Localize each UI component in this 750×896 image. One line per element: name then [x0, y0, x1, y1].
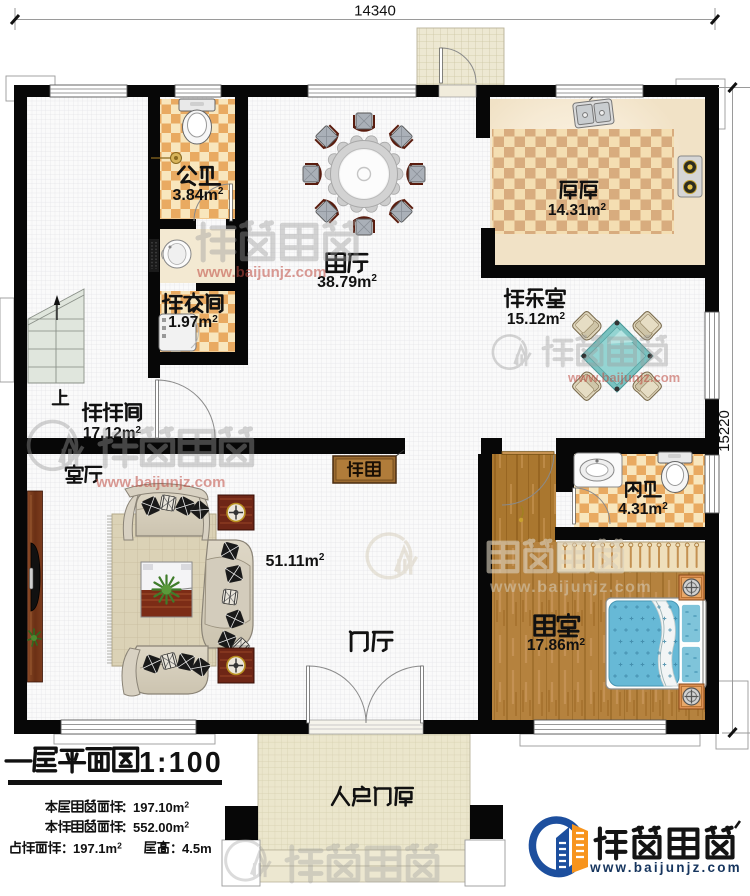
svg-text:197.1m2: 197.1m2	[73, 841, 122, 857]
svg-text:17.86m2: 17.86m2	[527, 637, 586, 654]
svg-text:4.5m: 4.5m	[182, 841, 212, 856]
svg-text:197.10m2: 197.10m2	[133, 800, 189, 816]
svg-text:1:100: 1:100	[139, 747, 223, 779]
svg-text:1.97m2: 1.97m2	[168, 314, 218, 331]
svg-text:www.baijunjz.com: www.baijunjz.com	[567, 370, 680, 385]
svg-text:www.baijunjz.com: www.baijunjz.com	[489, 579, 652, 596]
svg-text:14.31m2: 14.31m2	[548, 202, 607, 219]
svg-text:51.11m2: 51.11m2	[266, 552, 325, 570]
svg-text:www.baijunjz.com: www.baijunjz.com	[589, 860, 742, 875]
svg-text:4.31m2: 4.31m2	[618, 501, 668, 518]
svg-text:15220: 15220	[716, 410, 733, 452]
svg-text:552.00m2: 552.00m2	[133, 820, 189, 836]
svg-text:14340: 14340	[354, 3, 396, 20]
svg-text:www.baijunjz.com: www.baijunjz.com	[196, 264, 326, 281]
svg-text:www.baijunjz.com: www.baijunjz.com	[95, 474, 225, 491]
svg-text:3.84m2: 3.84m2	[173, 186, 224, 204]
svg-text:15.12m2: 15.12m2	[507, 311, 566, 328]
